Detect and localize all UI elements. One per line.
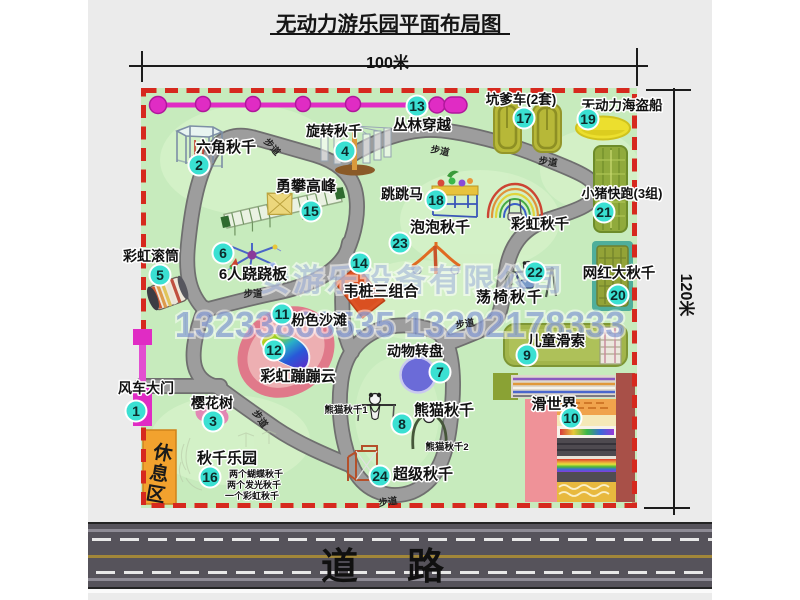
svg-text:旋转秋千: 旋转秋千 — [305, 123, 362, 139]
svg-text:秋千乐园: 秋千乐园 — [197, 449, 257, 467]
svg-text:21: 21 — [596, 204, 612, 220]
svg-text:一个彩虹秋千: 一个彩虹秋千 — [225, 490, 279, 501]
svg-text:7: 7 — [436, 364, 444, 380]
svg-text:彩虹滚筒: 彩虹滚筒 — [122, 248, 179, 264]
svg-text:跳跳马: 跳跳马 — [381, 186, 423, 202]
svg-text:熊猫秋千1: 熊猫秋千1 — [324, 404, 368, 416]
svg-text:樱花树: 樱花树 — [191, 395, 233, 411]
svg-text:19: 19 — [580, 111, 596, 127]
svg-text:11: 11 — [275, 306, 290, 322]
svg-text:熊猫秋千2: 熊猫秋千2 — [425, 441, 468, 453]
svg-text:两个蝴蝶秋千: 两个蝴蝶秋千 — [229, 468, 283, 479]
svg-text:动物转盘: 动物转盘 — [387, 343, 443, 359]
svg-text:6人跷跷板: 6人跷跷板 — [219, 265, 288, 283]
svg-text:1: 1 — [132, 403, 140, 419]
svg-text:丛林穿越: 丛林穿越 — [393, 116, 451, 134]
svg-text:风车大门: 风车大门 — [118, 380, 174, 396]
svg-text:18: 18 — [428, 192, 444, 208]
svg-text:22: 22 — [527, 264, 543, 280]
svg-text:20: 20 — [610, 287, 626, 303]
svg-text:韦桩三组合: 韦桩三组合 — [343, 282, 419, 300]
svg-text:熊猫秋千: 熊猫秋千 — [414, 401, 474, 419]
svg-text:13: 13 — [409, 98, 425, 114]
svg-text:息: 息 — [148, 460, 171, 486]
svg-text:3: 3 — [209, 413, 217, 429]
svg-text:16: 16 — [202, 469, 218, 485]
svg-text:泡泡秋千: 泡泡秋千 — [410, 218, 470, 236]
svg-text:彩虹蹦蹦云: 彩虹蹦蹦云 — [259, 367, 335, 385]
svg-text:15: 15 — [303, 203, 319, 219]
svg-text:勇攀高峰: 勇攀高峰 — [276, 177, 337, 195]
svg-text:两个发光秋千: 两个发光秋千 — [227, 479, 281, 490]
svg-text:粉色沙滩: 粉色沙滩 — [291, 312, 347, 328]
svg-text:荡椅秋千: 荡椅秋千 — [476, 288, 544, 306]
svg-text:14: 14 — [352, 255, 368, 271]
svg-text:4: 4 — [341, 143, 349, 159]
svg-text:9: 9 — [523, 347, 531, 363]
svg-text:小猪快跑(3组): 小猪快跑(3组) — [582, 186, 663, 201]
svg-text:5: 5 — [156, 267, 164, 283]
svg-text:坑爹车(2套): 坑爹车(2套) — [486, 91, 557, 107]
svg-text:区: 区 — [144, 483, 166, 507]
svg-text:10: 10 — [563, 410, 579, 426]
svg-text:8: 8 — [398, 416, 406, 432]
svg-text:12: 12 — [266, 342, 282, 358]
svg-text:2: 2 — [195, 157, 203, 173]
svg-text:24: 24 — [372, 468, 388, 484]
svg-text:六角秋千: 六角秋千 — [196, 138, 256, 156]
svg-text:网红大秋千: 网红大秋千 — [583, 264, 656, 282]
svg-text:超级秋千: 超级秋千 — [392, 465, 453, 483]
svg-text:17: 17 — [516, 110, 532, 126]
svg-text:步道: 步道 — [243, 288, 263, 300]
svg-text:彩虹秋千: 彩虹秋千 — [510, 215, 569, 233]
svg-text:23: 23 — [392, 235, 408, 251]
svg-text:6: 6 — [219, 245, 227, 261]
